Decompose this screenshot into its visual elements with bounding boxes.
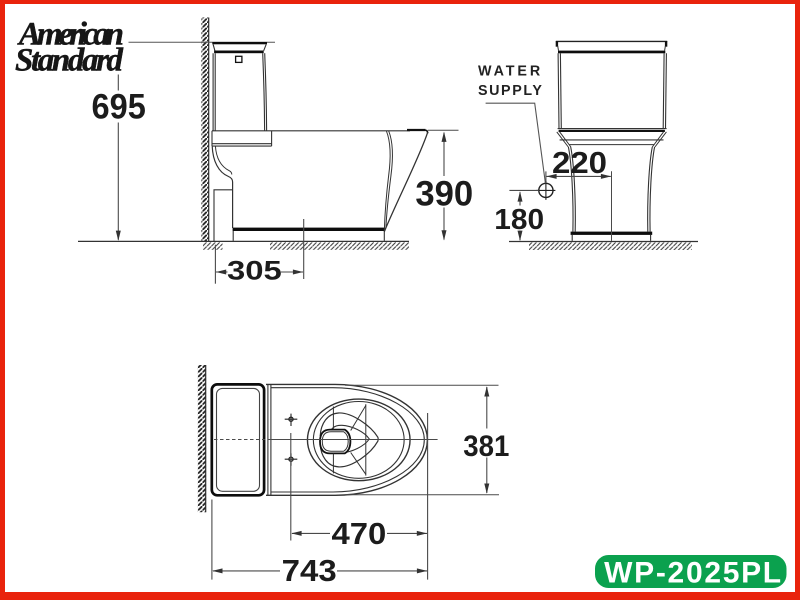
- svg-text:Standard: Standard: [15, 43, 124, 79]
- svg-text:381: 381: [463, 430, 509, 463]
- svg-text:180: 180: [494, 203, 544, 236]
- svg-text:695: 695: [92, 87, 146, 126]
- svg-text:743: 743: [282, 553, 337, 588]
- svg-text:220: 220: [552, 145, 607, 180]
- svg-text:390: 390: [415, 174, 473, 213]
- svg-text:470: 470: [331, 516, 386, 551]
- svg-text:WATER: WATER: [478, 64, 543, 80]
- svg-text:SUPPLY: SUPPLY: [478, 83, 544, 99]
- svg-text:305: 305: [227, 256, 282, 285]
- svg-text:WP-2025PL: WP-2025PL: [604, 557, 783, 590]
